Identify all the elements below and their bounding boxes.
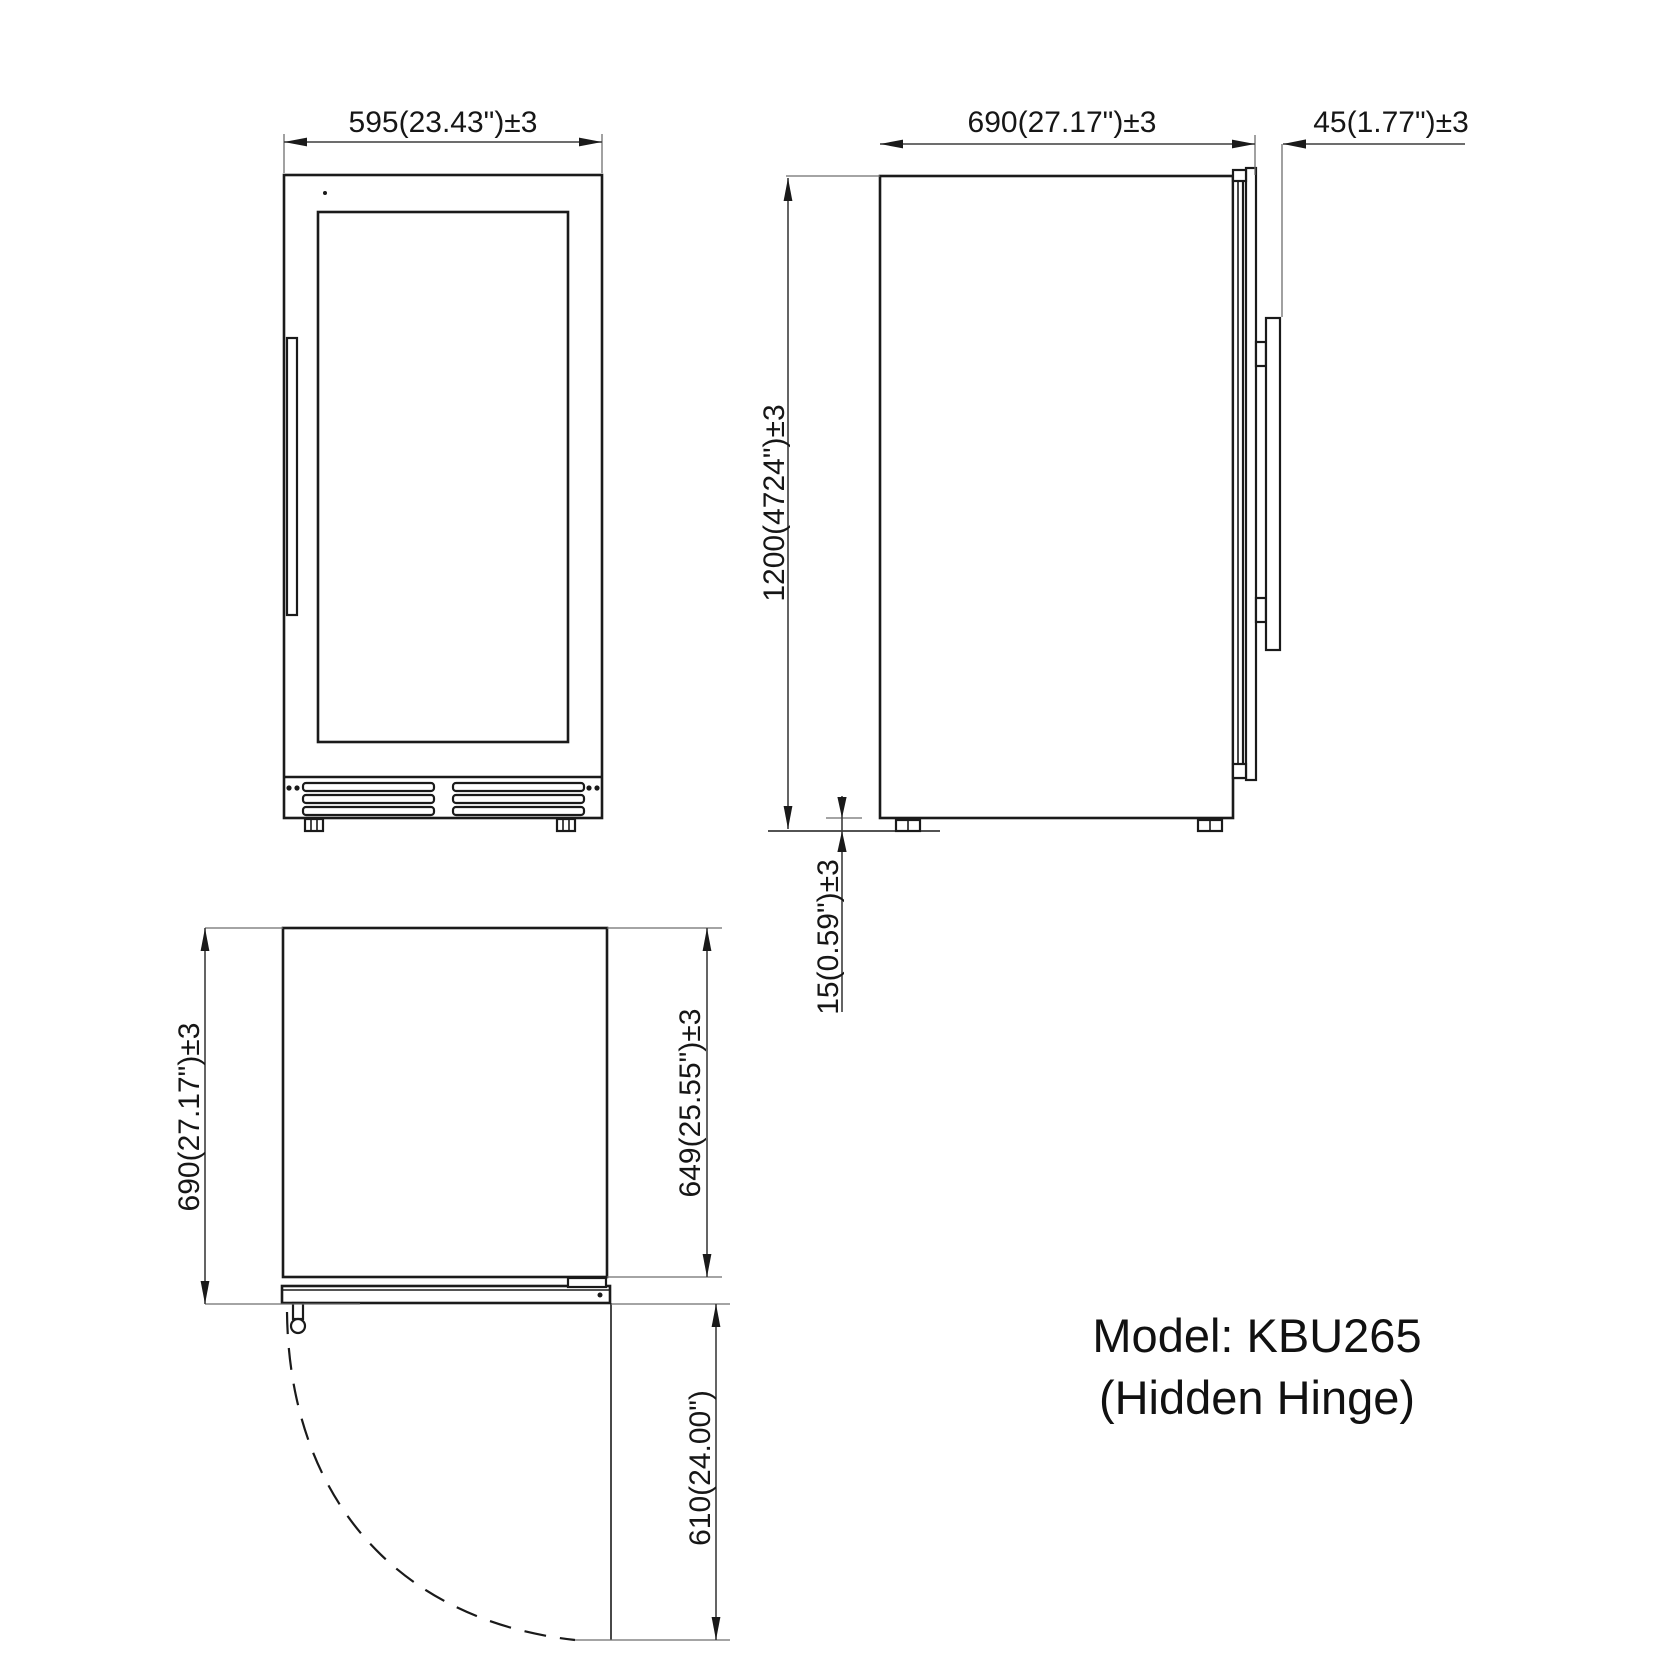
side-view: 690(27.17")±3 45(1.77")±3 1200(4724")±3 … <box>758 106 1469 1015</box>
front-feet <box>305 819 575 831</box>
front-width-dimension: 595(23.43")±3 <box>284 106 602 173</box>
top-door-swing-dimension: 610(24.00") <box>611 1304 730 1640</box>
side-door-bottom-hinge <box>1233 764 1246 778</box>
side-door-handle <box>1256 318 1280 650</box>
side-foot-clearance-dimension: 15(0.59")±3 <box>812 796 862 1015</box>
top-door-swing-label: 610(24.00") <box>684 1390 717 1546</box>
top-door <box>282 1286 610 1303</box>
side-height-dimension: 1200(4724")±3 <box>758 178 791 829</box>
top-cabinet-depth-dimension: 649(25.55")±3 <box>607 928 722 1277</box>
side-cabinet-outline <box>880 176 1233 818</box>
model-name-text: Model: KBU265 <box>1092 1309 1421 1362</box>
front-door-pin <box>323 191 327 195</box>
front-glass-door-frame <box>318 212 568 742</box>
side-handle-depth-dimension: 45(1.77")±3 <box>1282 106 1469 317</box>
top-cabinet-outline <box>283 928 607 1277</box>
front-door-handle <box>287 338 297 615</box>
technical-drawing: 595(23.43")±3 <box>0 0 1676 1676</box>
top-cabinet-depth-label: 649(25.55")±3 <box>674 1009 707 1198</box>
front-width-label: 595(23.43")±3 <box>349 106 538 139</box>
side-feet <box>768 820 1222 831</box>
dimension-drawing-page: 595(23.43")±3 <box>0 0 1676 1676</box>
top-hidden-hinge <box>568 1278 606 1287</box>
top-overall-depth-label: 690(27.17")±3 <box>173 1023 206 1212</box>
side-glass-door-panel <box>1246 168 1256 780</box>
door-swing-arc <box>287 1312 575 1640</box>
side-door-edge <box>1233 168 1256 780</box>
front-view: 595(23.43")±3 <box>284 106 602 831</box>
side-handle-depth-label: 45(1.77")±3 <box>1313 106 1469 139</box>
top-door-handle <box>291 1303 305 1333</box>
side-door-top-hinge <box>1233 170 1246 181</box>
model-caption: Model: KBU265 (Hidden Hinge) <box>1092 1309 1421 1424</box>
model-hinge-text: (Hidden Hinge) <box>1099 1371 1415 1424</box>
side-depth-label: 690(27.17")±3 <box>968 106 1157 139</box>
side-height-label: 1200(4724")±3 <box>758 404 791 601</box>
side-depth-dimension: 690(27.17")±3 <box>786 106 1255 176</box>
top-hinge-screw <box>598 1293 603 1298</box>
top-view: 690(27.17")±3 649(25.55")±3 610(24.00") <box>173 928 730 1640</box>
side-foot-clearance-label: 15(0.59")±3 <box>812 859 845 1015</box>
